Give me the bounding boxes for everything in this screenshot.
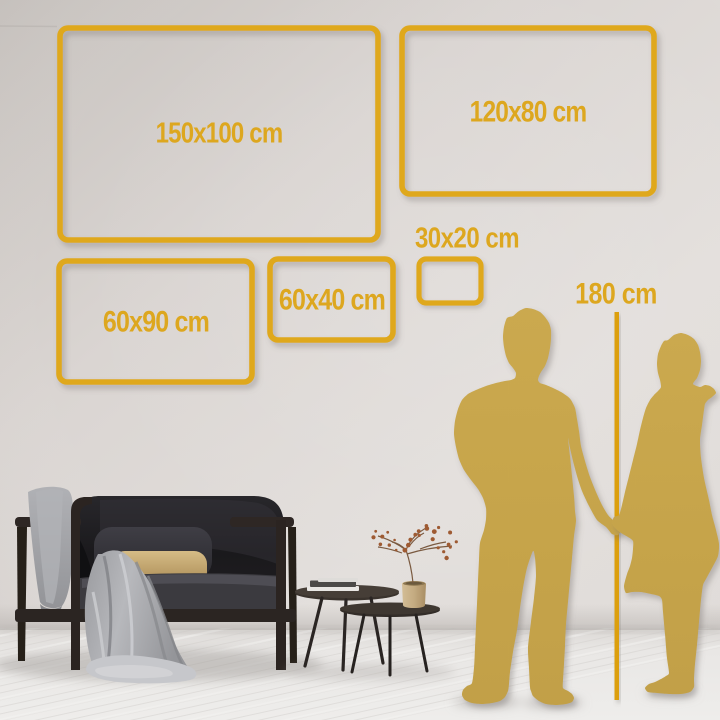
svg-text:60x90 cm: 60x90 cm [103, 304, 209, 338]
svg-text:150x100 cm: 150x100 cm [156, 117, 283, 150]
svg-text:60x40 cm: 60x40 cm [279, 282, 385, 316]
svg-text:180 cm: 180 cm [575, 276, 657, 310]
svg-text:30x20 cm: 30x20 cm [415, 222, 519, 255]
svg-text:120x80 cm: 120x80 cm [470, 96, 587, 129]
